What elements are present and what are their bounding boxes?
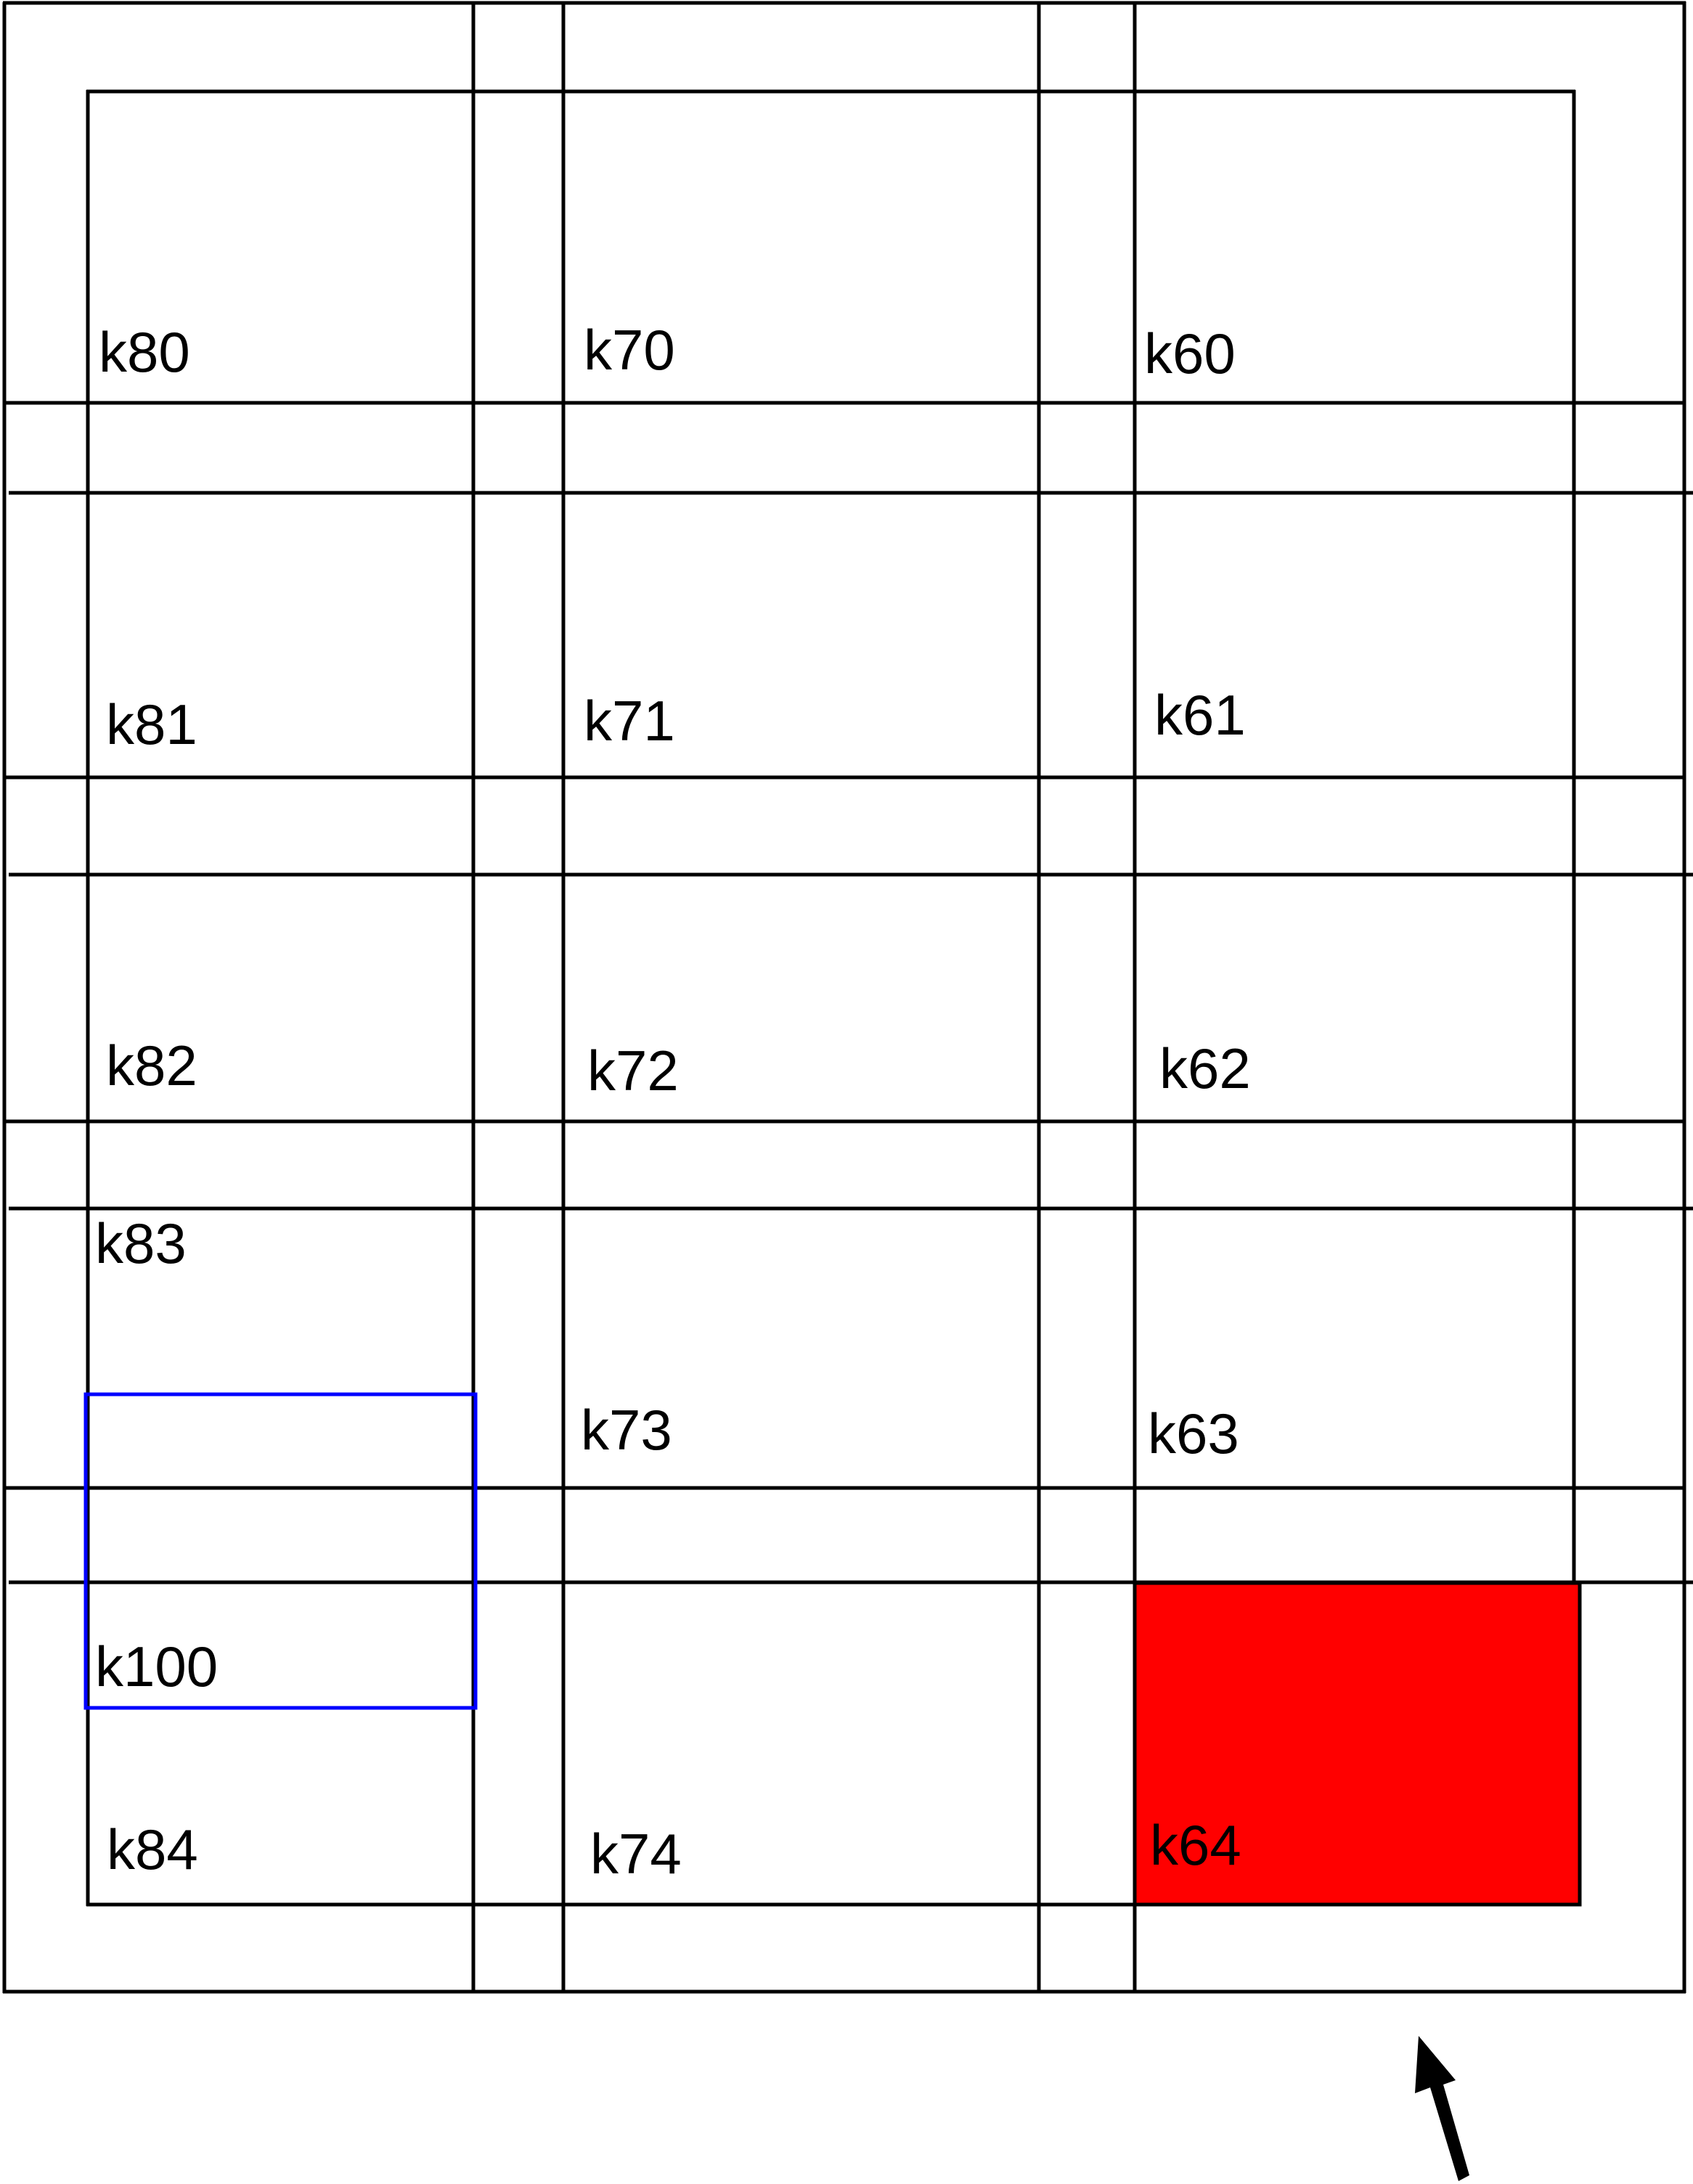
svg-text:k83: k83: [95, 1211, 187, 1275]
svg-text:k84: k84: [107, 1817, 198, 1881]
svg-text:k82: k82: [106, 1034, 197, 1097]
svg-text:k81: k81: [106, 692, 197, 756]
svg-text:k60: k60: [1144, 322, 1236, 385]
svg-text:k62: k62: [1159, 1036, 1251, 1100]
svg-text:k80: k80: [99, 320, 190, 384]
svg-text:k100: k100: [95, 1635, 218, 1698]
svg-text:k72: k72: [587, 1039, 679, 1103]
svg-text:k71: k71: [584, 689, 675, 753]
svg-text:k64: k64: [1150, 1813, 1241, 1877]
svg-text:k63: k63: [1148, 1402, 1239, 1465]
svg-text:k70: k70: [584, 318, 675, 382]
svg-text:k73: k73: [581, 1398, 672, 1462]
svg-text:k61: k61: [1154, 683, 1246, 747]
svg-text:k74: k74: [590, 1822, 682, 1886]
